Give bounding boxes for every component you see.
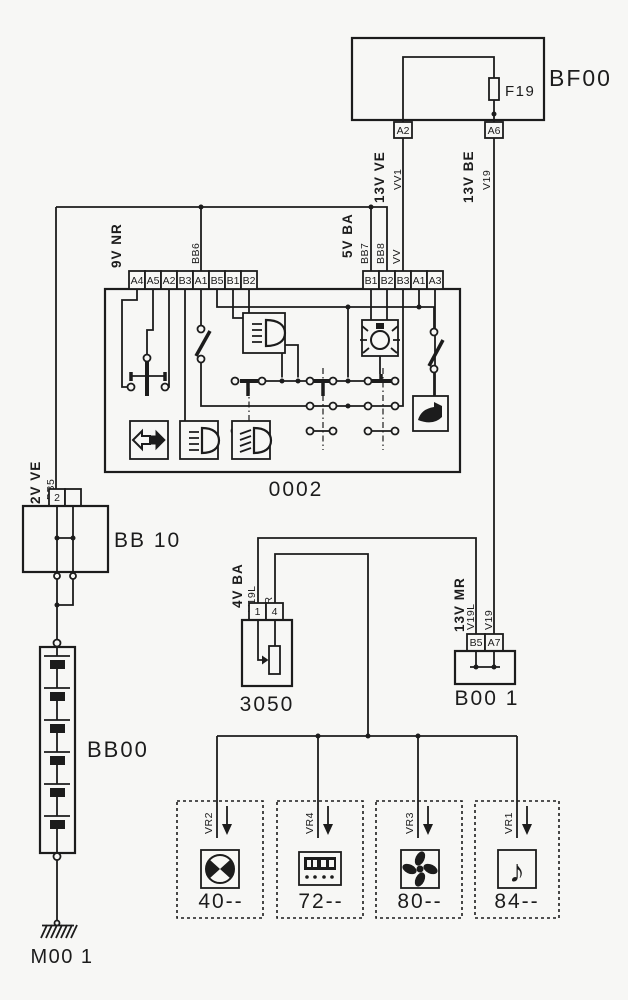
fuse-label: F19 — [505, 83, 535, 100]
wire-label-13v-be: 13V BE — [461, 150, 476, 203]
load-box-blower: VR3 80-- — [376, 801, 462, 918]
bf00-pin-a6-label: A6 — [488, 125, 501, 137]
slider-contacts-row2 — [307, 403, 422, 410]
wire-code-v19l-b: V19L — [465, 603, 477, 630]
wire-code-vr1: VR1 — [503, 812, 515, 834]
horn-icon — [413, 396, 448, 431]
joystick-switch — [128, 355, 169, 397]
ground-label: M00 1 — [30, 946, 93, 968]
c0002-right-pin-strip: B1 B2 B3 A1 A3 — [363, 271, 443, 289]
slider-contacts-row1 — [232, 356, 399, 396]
battery-label: BB00 — [87, 737, 149, 762]
rheostat-icon — [258, 620, 280, 674]
wire-code-vr4: VR4 — [304, 812, 316, 834]
music-note-glyph: ♪ — [509, 853, 525, 889]
pin-label: B3 — [397, 275, 410, 287]
c0002-left-pin-strip: A4 A5 A2 B3 A1 B5 B1 B2 — [129, 271, 257, 289]
bus-label-5v-ba: 5V BA — [340, 213, 355, 258]
pin-label: A4 — [131, 275, 144, 287]
low-beam-icon — [180, 421, 219, 459]
pin-label: B2 — [243, 275, 256, 287]
bb10-label: BB 10 — [114, 529, 181, 552]
bf00-label: BF00 — [549, 65, 612, 91]
pin-label: B3 — [179, 275, 192, 287]
wires — [470, 651, 500, 670]
wires — [403, 57, 497, 122]
wire-code-v19-b: V19 — [483, 610, 495, 630]
c0002-label: 0002 — [269, 478, 324, 501]
b001-pin-a7-label: A7 — [488, 637, 501, 649]
wire-code-vv: VV — [391, 249, 403, 264]
pin-label: A2 — [163, 275, 176, 287]
digital-clock-icon — [299, 852, 341, 885]
wire-top-bus — [56, 207, 387, 271]
load-box-heater: VR2 40-- — [177, 801, 263, 918]
pin-label: A5 — [147, 275, 160, 287]
u3050-label: 3050 — [240, 693, 295, 716]
pin-label: B5 — [211, 275, 224, 287]
load-bus-wires — [217, 734, 517, 839]
fan-icon — [401, 850, 439, 888]
turn-signal-icon — [130, 421, 168, 459]
load-code: 72-- — [298, 890, 343, 913]
u3050-box — [242, 620, 292, 686]
fuse-icon — [489, 78, 499, 100]
c0002-unit: 0002 9V NR BB6 5V BA BB7 BB8 VV A4 A5 A2… — [105, 213, 460, 501]
wire-code-vr3: VR3 — [404, 812, 416, 834]
wire-label-13v-ve: 13V VE — [372, 151, 387, 203]
b001-pin-b5-label: B5 — [470, 637, 483, 649]
battery-unit: BB00 — [40, 640, 149, 921]
wire-code-bb7: BB7 — [359, 243, 371, 264]
bb10-pin-2-label: 2 — [54, 492, 60, 504]
toggle-switch-left — [196, 326, 210, 363]
bb10-unit: 2V VE BB5 2 BB 10 — [23, 461, 181, 640]
wire-code-v19: V19 — [481, 170, 493, 190]
bb10-pin-empty — [65, 489, 81, 506]
music-note-icon: ♪ — [498, 850, 536, 889]
bf00-unit: BF00 F19 A2 A6 13V VE VV1 13V BE V19 — [352, 38, 612, 203]
pin-label: B1 — [365, 275, 378, 287]
bus-label-9v-nr: 9V NR — [109, 223, 124, 268]
wire-code-bb6: BB6 — [190, 243, 202, 264]
pin-label: B2 — [381, 275, 394, 287]
toggle-switch-right — [429, 329, 443, 397]
pin-label: B1 — [227, 275, 240, 287]
u3050-pin-4-label: 4 — [272, 606, 278, 618]
pin-label: A1 — [195, 275, 208, 287]
bf00-box — [352, 38, 544, 120]
wiring-diagram-canvas: BF00 F19 A2 A6 13V VE VV1 13V BE V19 000… — [0, 0, 628, 1000]
air-distribution-icon — [201, 850, 239, 888]
load-code: 80-- — [397, 890, 442, 913]
pin-label: A1 — [413, 275, 426, 287]
bus-label-2v-ve: 2V VE — [28, 461, 43, 504]
b001-label: B00 1 — [455, 687, 520, 710]
bf00-pin-a2-label: A2 — [397, 125, 410, 137]
ground-unit: M00 1 — [30, 921, 93, 969]
wire-code-bb8: BB8 — [375, 243, 387, 264]
fog-light-icon — [232, 421, 271, 459]
battery-cells-icon — [44, 647, 70, 853]
bus-label-4v-ba: 4V BA — [230, 563, 245, 608]
wire-code-vr2: VR2 — [203, 812, 215, 834]
u3050-pin-1-label: 1 — [255, 606, 261, 618]
bb10-box — [23, 506, 108, 572]
b001-unit: 13V MR V19L V19 B5 A7 B00 1 — [452, 577, 519, 710]
wiring-diagram-page: BF00 F19 A2 A6 13V VE VV1 13V BE V19 000… — [0, 0, 628, 1000]
load-code: 40-- — [198, 890, 243, 913]
bulb-icon — [360, 320, 400, 356]
ground-icon — [41, 925, 77, 938]
u3050-unit: 4V BA V19L VR 1 4 3050 — [230, 538, 476, 736]
pin-label: A3 — [429, 275, 442, 287]
main-beam-icon — [243, 313, 285, 353]
load-box-clock: VR4 72-- — [277, 801, 363, 918]
load-code: 84-- — [494, 890, 539, 913]
